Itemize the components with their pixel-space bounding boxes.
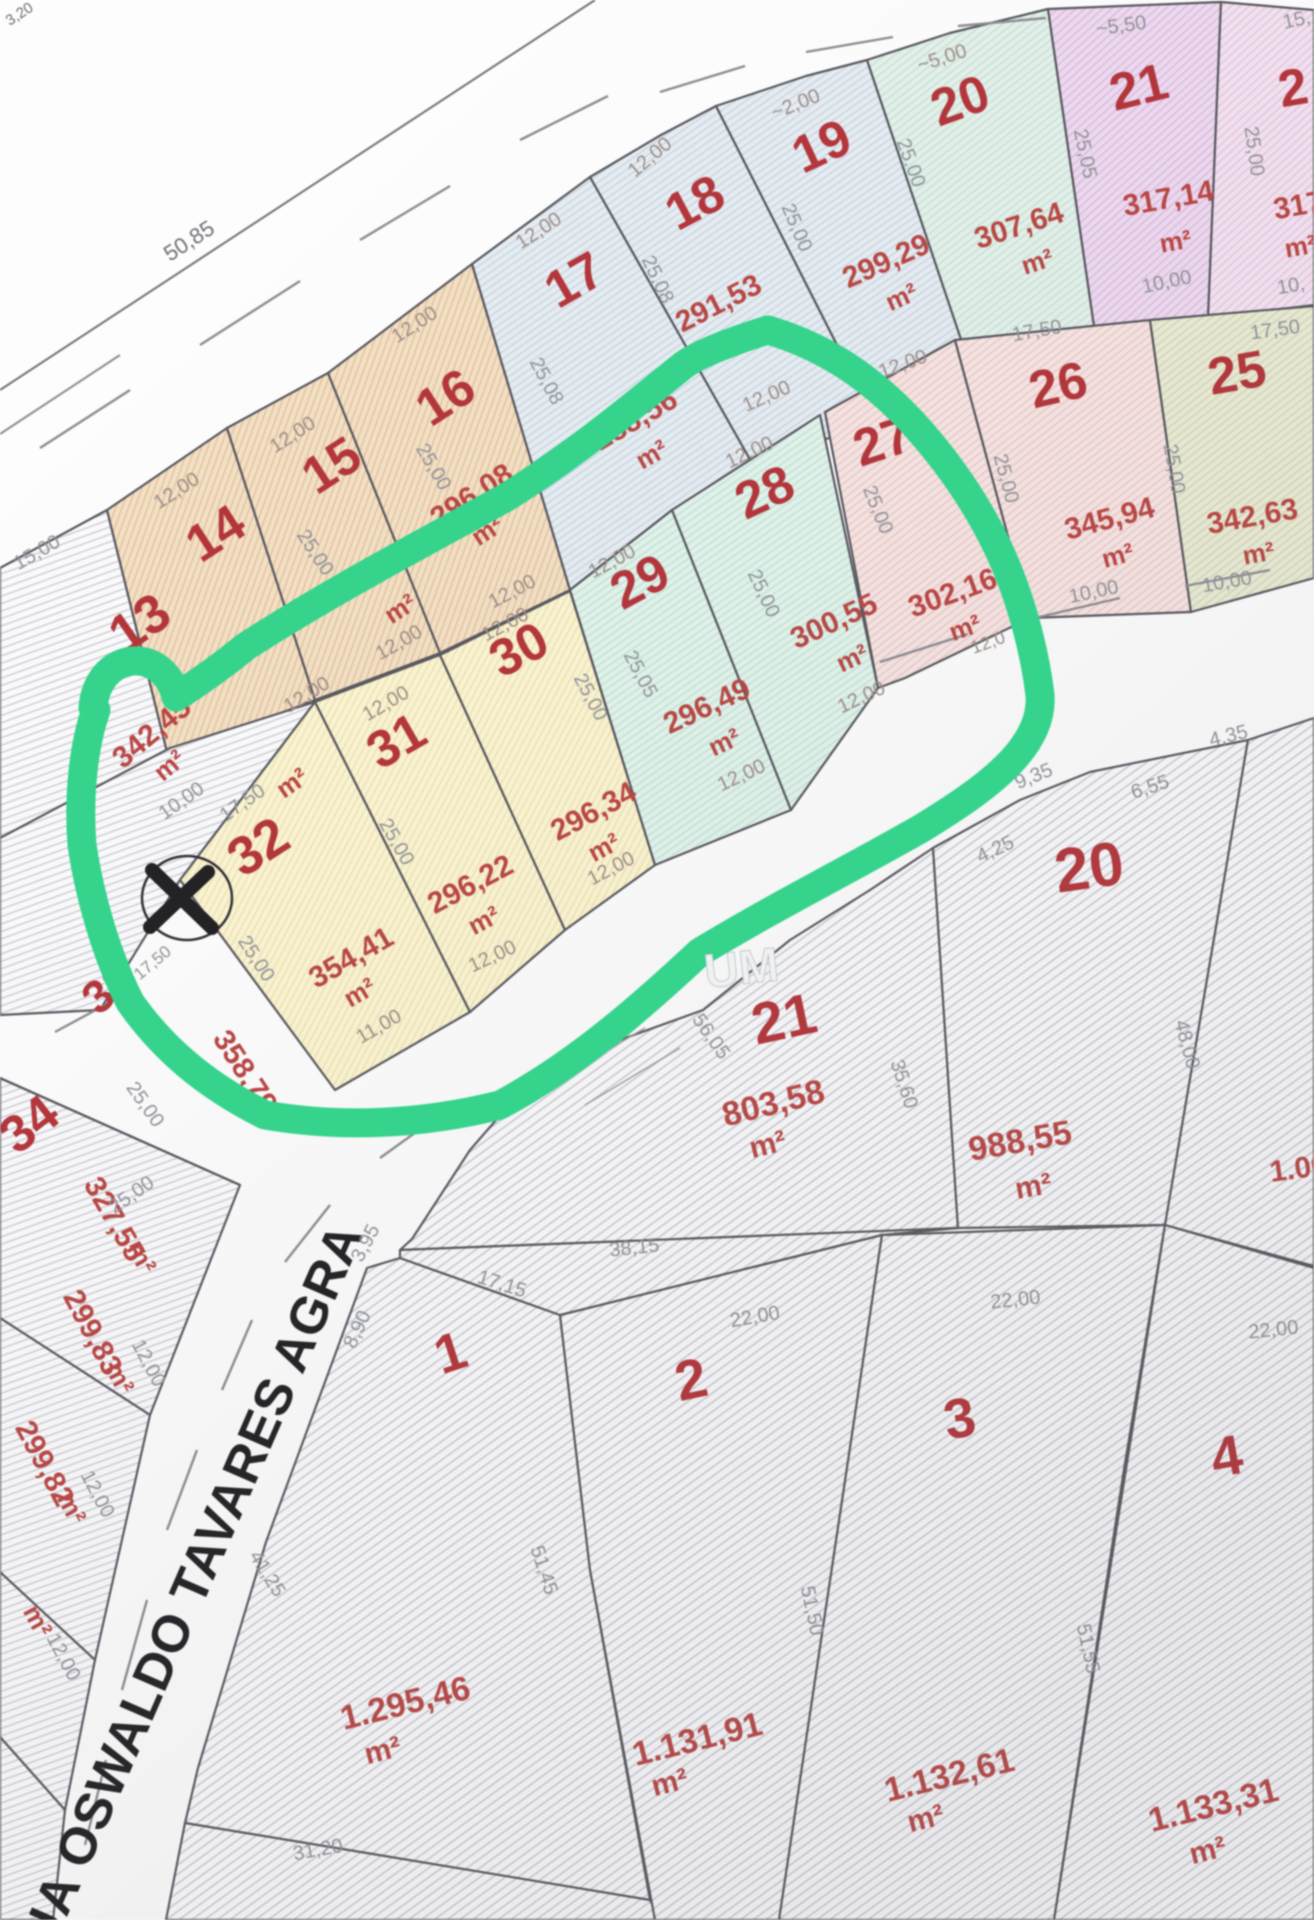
svg-text:UM: UM <box>702 938 782 999</box>
